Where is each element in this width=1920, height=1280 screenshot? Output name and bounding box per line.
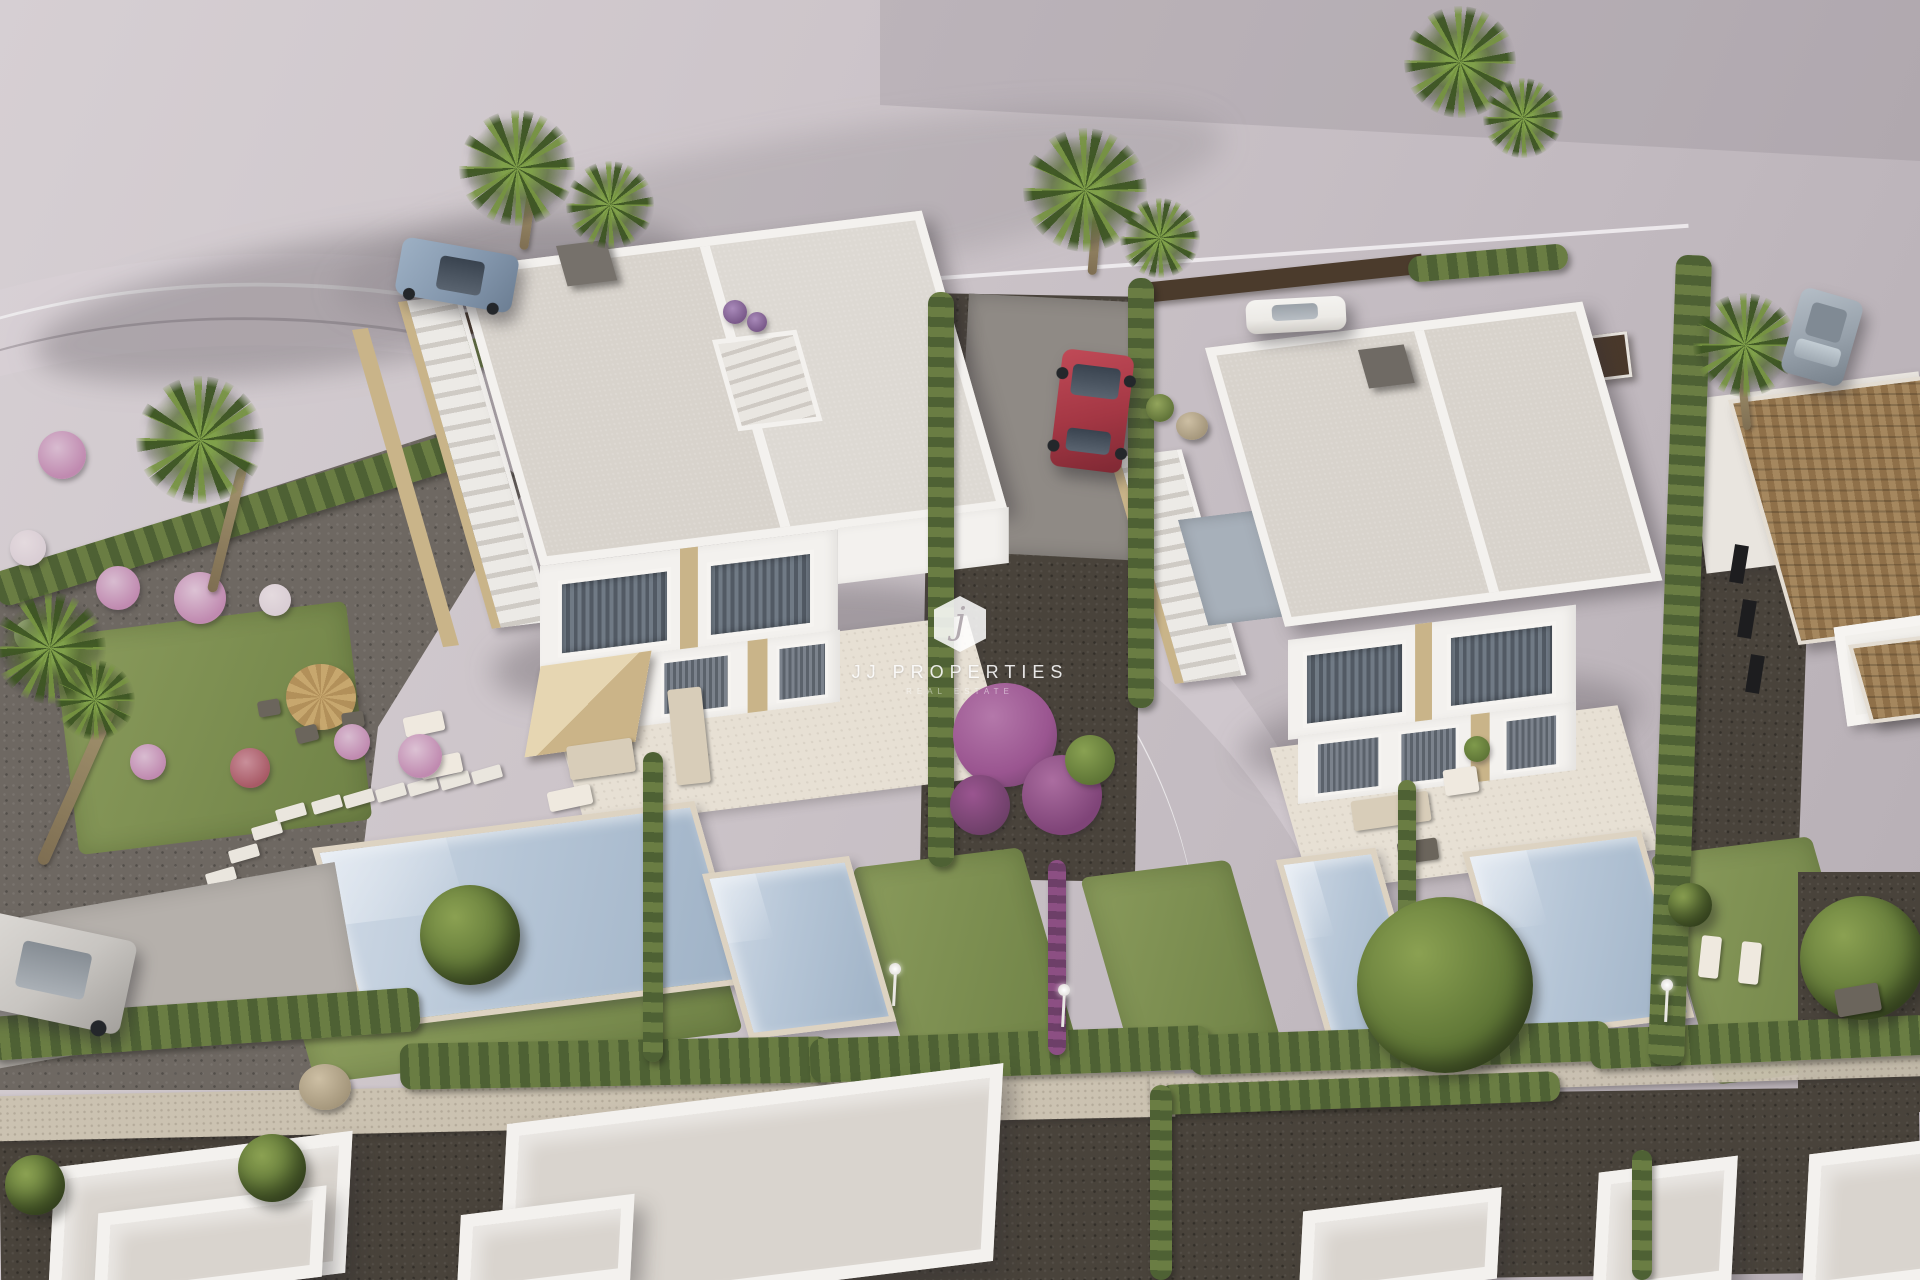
palm-tree bbox=[1693, 293, 1797, 397]
square-parasol bbox=[525, 651, 652, 758]
leafy-tree bbox=[238, 1134, 306, 1202]
stone-accent bbox=[1415, 622, 1432, 724]
glass-door bbox=[1504, 712, 1560, 773]
glass-door bbox=[777, 640, 829, 704]
flower-bush bbox=[230, 748, 270, 788]
car-wheel bbox=[1056, 366, 1069, 379]
flower-bush bbox=[398, 734, 442, 778]
palm-tree bbox=[136, 376, 264, 504]
outdoor-armchair bbox=[1442, 766, 1479, 796]
flower-bush bbox=[334, 724, 370, 760]
suv-gray bbox=[1779, 286, 1865, 388]
garden-rock bbox=[299, 1064, 351, 1110]
car-red bbox=[1049, 348, 1135, 474]
stone-accent bbox=[748, 638, 768, 712]
palm-tree bbox=[1120, 198, 1200, 278]
window bbox=[1302, 639, 1406, 728]
flower-bush bbox=[723, 300, 747, 324]
flower-bush bbox=[38, 431, 86, 479]
flower-bush bbox=[259, 584, 291, 616]
car-roof-rails bbox=[1804, 302, 1848, 344]
right-villa-roof bbox=[1205, 302, 1662, 627]
shrub bbox=[1668, 883, 1712, 927]
flower-bush bbox=[747, 312, 767, 332]
leafy-tree bbox=[5, 1155, 65, 1215]
corridor-hedge-right bbox=[1128, 278, 1154, 708]
leafy-tree bbox=[1357, 897, 1533, 1073]
stone-accent bbox=[680, 547, 698, 654]
window bbox=[1446, 621, 1555, 710]
bottom-hedge-vertical bbox=[1632, 1150, 1652, 1280]
plot-divider-hedge bbox=[643, 752, 663, 1062]
car-windshield bbox=[14, 940, 93, 1001]
palm-tree bbox=[459, 110, 575, 226]
car-white bbox=[1245, 295, 1347, 334]
car-wheel bbox=[1047, 439, 1060, 452]
leafy-tree bbox=[420, 885, 520, 985]
bottom-hedge-row bbox=[400, 1036, 831, 1089]
flower-bush bbox=[10, 530, 46, 566]
car-windshield bbox=[1271, 303, 1318, 321]
bottom-building bbox=[1802, 1134, 1920, 1280]
window bbox=[558, 567, 671, 659]
garden-rock bbox=[1176, 412, 1208, 440]
glass-door bbox=[1315, 734, 1382, 797]
palm-tree bbox=[1483, 78, 1563, 158]
tree-foliage bbox=[1065, 735, 1115, 785]
corridor-hedge-left bbox=[928, 292, 954, 867]
rear-hedge-right-parcel bbox=[1407, 243, 1569, 283]
palm-tree bbox=[566, 161, 654, 249]
grass-tuft bbox=[1146, 394, 1174, 422]
bottom-hedge-vertical bbox=[1150, 1085, 1172, 1280]
bougainvillea-tree bbox=[950, 775, 1010, 835]
car-windshield bbox=[1069, 364, 1121, 400]
flower-bush bbox=[96, 566, 140, 610]
bottom-building bbox=[1592, 1156, 1738, 1280]
roof-divider-wall bbox=[1414, 330, 1499, 593]
car-rear-window bbox=[1065, 427, 1111, 456]
aerial-render-scene: j JJ PROPERTIES REAL ESTATE bbox=[0, 0, 1920, 1280]
car-windshield bbox=[435, 255, 485, 297]
palm-tree bbox=[55, 660, 135, 740]
window bbox=[707, 549, 814, 640]
terrace-plant bbox=[1464, 736, 1490, 762]
flower-bush bbox=[130, 744, 166, 780]
